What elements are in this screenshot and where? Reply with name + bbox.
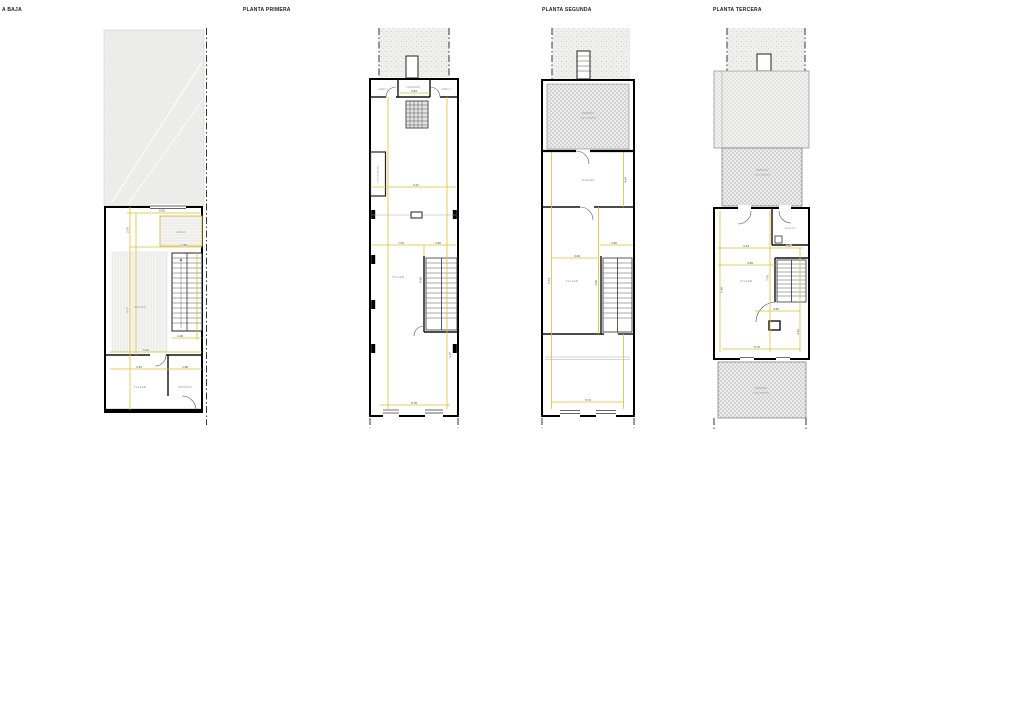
room-terraza-lower: TERRAZA: [755, 386, 767, 390]
dim: 2.55: [181, 243, 187, 247]
dim: 3.84: [411, 89, 417, 93]
dim: 7.04: [398, 241, 404, 245]
exterior-wall: [370, 79, 458, 416]
room-taller: TALLER: [134, 385, 147, 389]
room-terraza: TERRAZA: [582, 111, 594, 115]
dim: 0.60: [419, 277, 423, 283]
dim: 1.26: [177, 334, 183, 338]
dim: 4.47: [448, 352, 452, 358]
room-almacen: ALMACÉN: [582, 177, 595, 182]
dim: 4.27: [413, 183, 419, 187]
dim: 3.55: [773, 307, 779, 311]
dim: 3.43: [796, 329, 800, 335]
door-arc: [576, 151, 589, 164]
dim: 1.98: [182, 365, 188, 369]
room-vestibulo: VESTÍBULO: [178, 385, 193, 389]
plan-planta-tercera: TERRAZA SUELO ARENA ALMACÉN: [714, 28, 809, 430]
title-planta-primera: PLANTA PRIMERA: [243, 7, 291, 13]
staircase: [414, 256, 458, 336]
dim: 5.52: [159, 209, 165, 213]
dim: 3.69: [747, 261, 753, 265]
room-taller: TALLER: [392, 275, 405, 279]
fixture: [775, 236, 782, 243]
dim: 4.77: [126, 307, 130, 313]
dim: 2.76: [126, 227, 130, 233]
estudio-hatch: [112, 252, 167, 352]
room-lavadero: LAVADERO: [406, 85, 420, 89]
dim: 3.44: [743, 244, 749, 248]
dim: 7.76: [766, 275, 770, 281]
room-shaft-label: MONTACARGAS: [377, 165, 380, 183]
door-arc: [738, 211, 751, 224]
title-planta-segunda: PLANTA SEGUNDA: [542, 7, 592, 13]
room-altillo: ALTILLO: [176, 230, 186, 234]
dim: 2.36: [611, 241, 617, 245]
drawing-canvas: A BAJA PLANTA PRIMERA PLANTA SEGUNDA PLA…: [0, 0, 1024, 707]
staircase: [172, 253, 202, 331]
room-taller: TALLER: [740, 279, 753, 283]
door-arc: [155, 355, 166, 366]
entry-door-arc: [182, 396, 196, 410]
plan-planta-primera: MONTACARGAS: [370, 28, 458, 417]
dim: 5.48: [720, 287, 724, 293]
room-taller: TALLER: [566, 279, 579, 283]
rear-window-gap: [150, 204, 186, 210]
room-terraza-upper: TERRAZA: [756, 168, 768, 172]
dimension-lines: [372, 93, 456, 409]
chimney: [757, 54, 771, 71]
dim: 3.32: [136, 365, 142, 369]
room-almacen: ALMACÉN: [785, 227, 796, 230]
dim: 5.16: [143, 348, 149, 352]
room-aseo1: ASEO 1: [378, 87, 388, 91]
door-arc: [580, 207, 593, 220]
dim: 6.74: [547, 278, 551, 284]
dim: 4.64: [624, 177, 628, 183]
rear-patio-hatch: [104, 30, 204, 206]
dim: 3.29: [574, 254, 580, 258]
dim: 2.36: [435, 241, 441, 245]
room-terraza-floor: SUELO ARENA: [580, 117, 596, 120]
skylight: [406, 101, 428, 128]
dim: 5.74: [585, 398, 591, 402]
terrace-hatch: [547, 84, 629, 149]
party-wall-hatch: [552, 28, 630, 79]
room-aseo2: ASEO 2: [441, 87, 451, 91]
terrace-lower-hatch: [718, 362, 806, 418]
room-estudio: ESTUDIO: [134, 305, 146, 309]
dim: 5.78: [411, 401, 417, 405]
terrace-door-gap: [738, 205, 751, 211]
door-arc: [779, 211, 791, 223]
staircase: [601, 256, 632, 334]
chimney: [577, 51, 590, 79]
column: [411, 212, 422, 218]
chimney: [406, 56, 418, 78]
door-arc: [430, 87, 440, 97]
floorplan-sheet: A BAJA PLANTA PRIMERA PLANTA SEGUNDA PLA…: [0, 0, 1024, 707]
room-terraza-lower-floor: SUELO ARENA: [753, 392, 769, 395]
dim: 2.37: [786, 244, 792, 248]
title-planta-tercera: PLANTA TERCERA: [713, 7, 762, 13]
plan-planta-baja: 5.52 2.76 4.77 2.55 5.16 3.32 1.98 1.26 …: [104, 28, 207, 425]
terrace-upper-hatch: [722, 148, 802, 206]
room-terraza-upper-floor: SUELO ARENA: [754, 174, 770, 177]
terrace-door-gap-2: [779, 205, 791, 211]
roof-below-hatch: [714, 71, 809, 148]
plan-planta-segunda: TERRAZA SUELO ARENA: [542, 28, 634, 417]
dim: 4.60: [594, 280, 598, 286]
staircase: [756, 258, 809, 330]
title-planta-baja: A BAJA: [2, 7, 22, 13]
dim: 5.76: [754, 345, 760, 349]
